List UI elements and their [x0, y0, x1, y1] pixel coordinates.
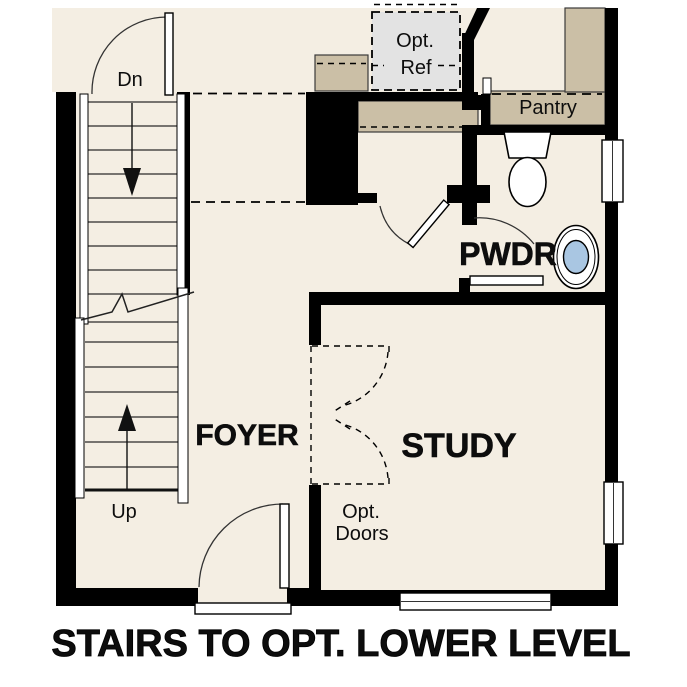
kitchen-block-wall: [306, 92, 358, 205]
opt-doors-label-line2: Doors: [335, 524, 388, 544]
stairs-down-label: Dn: [117, 70, 143, 90]
sink-basin: [564, 241, 589, 274]
stairs-up-label: Up: [111, 502, 137, 522]
foyer-study-wall-upper: [309, 303, 321, 345]
room-label-foyer: FOYER: [195, 421, 298, 451]
pantry-door-jamb: [483, 78, 491, 94]
toilet-bowl: [509, 158, 546, 207]
angled-wall-column: [462, 33, 474, 97]
kitchen-cabinet: [315, 55, 368, 91]
closet-bottom-wall-left: [309, 193, 377, 203]
left-wall: [56, 92, 76, 590]
front-door-leaf: [280, 504, 289, 588]
opt-ref-label-line2: Ref: [400, 58, 431, 78]
opt-ref-label-line1: Opt.: [396, 31, 434, 51]
floorplan-page: Dn Up FOYER STUDY PWDR Pantry Opt. Ref O…: [0, 0, 687, 687]
bottom-wall-left: [56, 588, 198, 606]
foyer-study-wall-lower: [309, 485, 321, 606]
room-label-pantry: Pantry: [519, 98, 577, 118]
plan-caption: STAIRS TO OPT. LOWER LEVEL: [51, 625, 630, 663]
stair-door-leaf: [165, 13, 173, 95]
study-pwdr-wall: [309, 292, 605, 305]
pwdr-door-leaf: [470, 276, 543, 285]
floorplan-canvas: [0, 0, 687, 687]
front-door-threshold: [195, 603, 291, 614]
toilet-tank: [504, 132, 551, 158]
room-label-study: STUDY: [401, 429, 516, 463]
pwdr-left-wall: [462, 125, 477, 225]
room-label-powder: PWDR: [459, 238, 557, 270]
opt-doors-label-line1: Opt.: [342, 502, 380, 522]
kitchen-counter-strip: [565, 8, 605, 92]
closet-bottom-wall-right: [447, 185, 490, 203]
pwdr-door-stub: [459, 278, 470, 295]
